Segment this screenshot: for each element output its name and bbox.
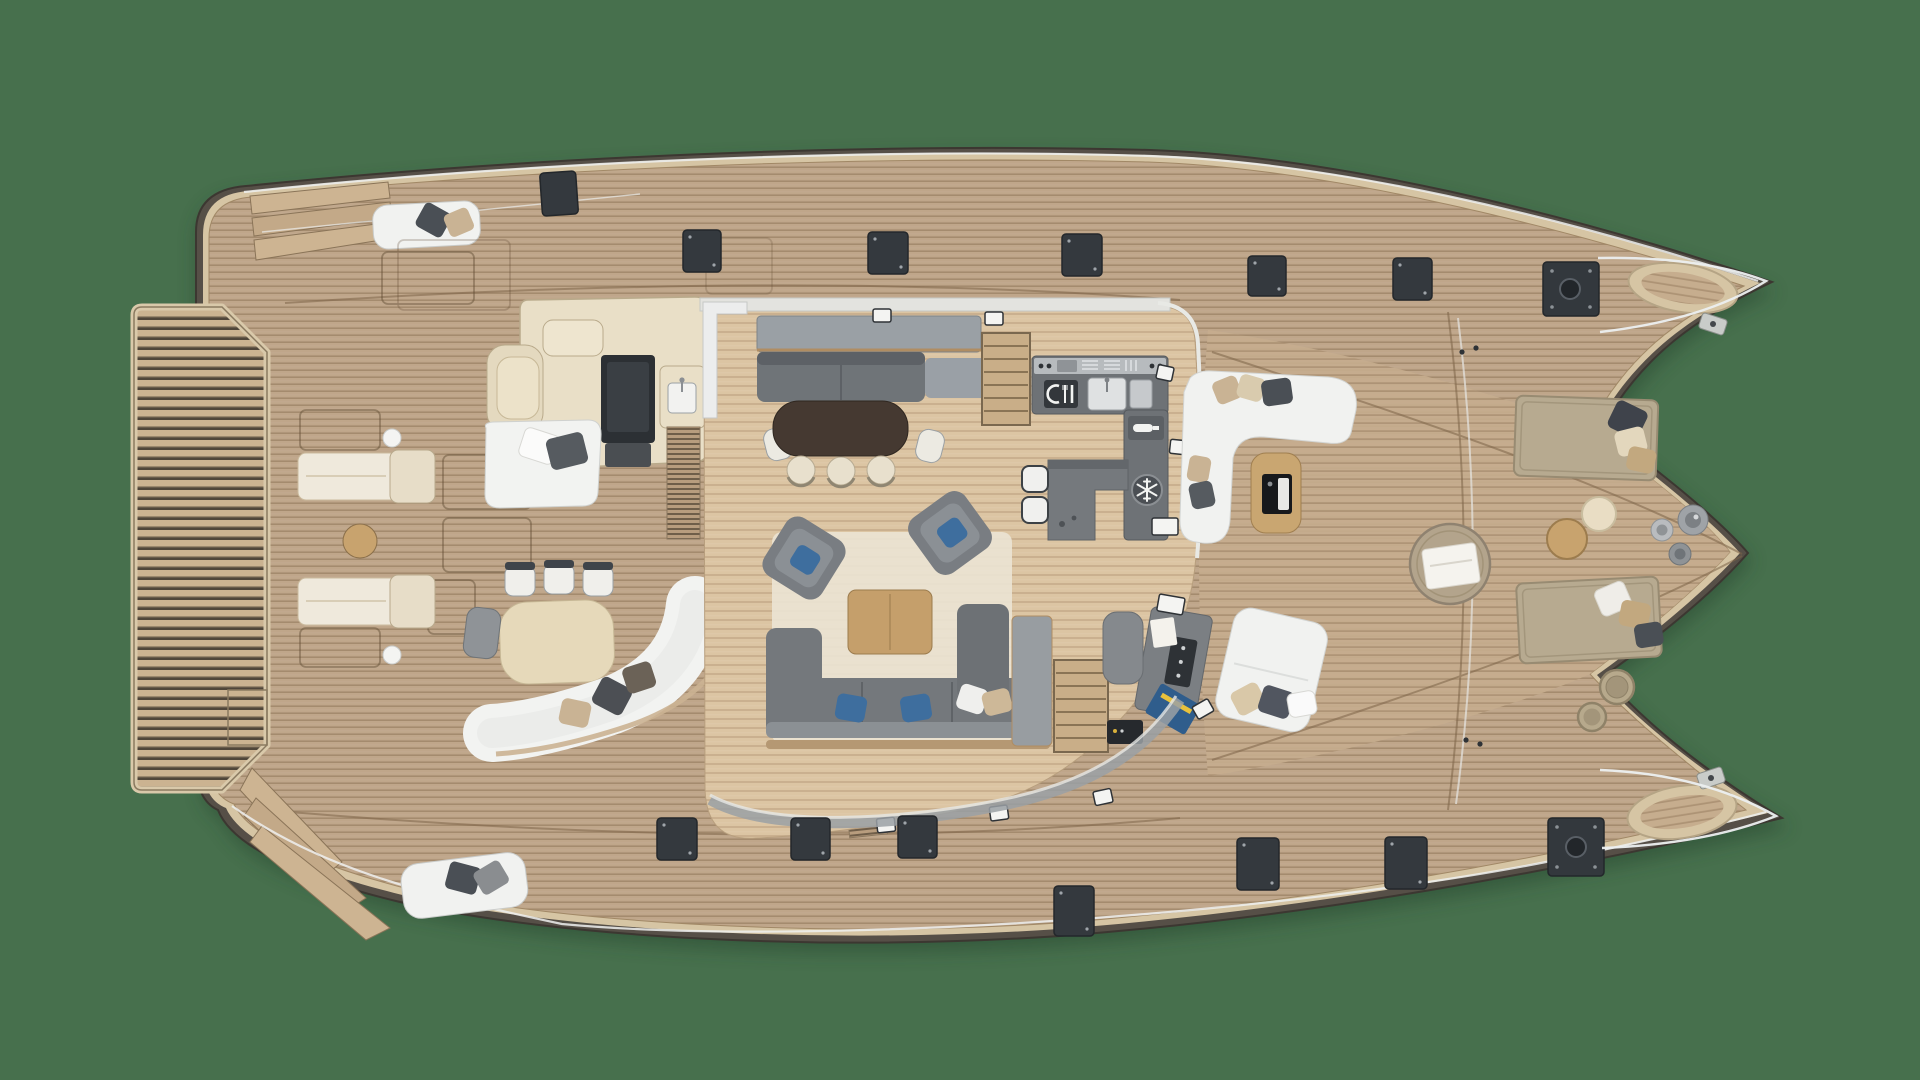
stairs-port [1054, 660, 1108, 752]
helm-corner-seat [485, 420, 601, 508]
sliding-door-post [1157, 594, 1186, 615]
salon-roof-edge [700, 298, 1170, 311]
salon-front-sofa [757, 352, 987, 402]
bar-seat-cushions [487, 345, 543, 431]
foredeck-table-cream [1582, 497, 1616, 531]
snowflake-icon [1132, 475, 1162, 505]
pillow [899, 693, 933, 723]
nav-paper [1150, 617, 1178, 648]
pillow [1286, 690, 1318, 718]
cleat [1473, 345, 1478, 350]
galley-stool [1022, 466, 1048, 492]
cleat [1463, 737, 1468, 742]
pillow [834, 693, 868, 724]
deck-vent-large-top [1543, 262, 1599, 316]
galley-sink [1088, 378, 1126, 410]
sofa-wood-base [766, 740, 1050, 749]
deck-lamp [383, 646, 401, 664]
dining-chair [787, 456, 815, 486]
cutlery-icon [1044, 380, 1078, 408]
bar-tv-base [605, 443, 651, 467]
bar-hatch-lid [543, 320, 603, 356]
coffee-table [848, 590, 932, 654]
aft-lounger-upper [298, 450, 435, 503]
round-side-table [343, 524, 377, 558]
aft-lounger-lower [298, 575, 435, 628]
foredeck-sunpad-bottom [1516, 576, 1665, 663]
salon-dining-table [773, 401, 908, 456]
deck-vent-large-bottom [1548, 818, 1604, 876]
stairs-starboard [982, 333, 1030, 425]
outdoor-dining-table [499, 599, 616, 685]
sofa-side-console [1012, 616, 1052, 746]
yacht-deck-plan [0, 0, 1920, 1080]
deck-hatch [540, 171, 579, 216]
cockpit-pouf [1410, 524, 1490, 604]
sliding-door-post [1152, 518, 1178, 535]
bar-sink-unit [660, 366, 705, 428]
cleat [1477, 741, 1482, 746]
bottle-icon [1128, 416, 1164, 440]
dining-chair [867, 456, 895, 486]
companionway-grate-top [667, 427, 700, 539]
nav-seat [1103, 612, 1143, 684]
end-seat [462, 606, 502, 660]
dining-chair [827, 457, 855, 487]
dining-chair-outdoor [505, 562, 535, 596]
dining-chair-outdoor [583, 562, 613, 596]
deck-plan-canvas [0, 0, 1920, 1080]
galley-cooktop [1034, 358, 1166, 374]
aft-sofa-top [372, 198, 481, 250]
dining-chair-outdoor [544, 560, 574, 594]
cleat [1459, 349, 1464, 354]
salon-sideboard [757, 316, 981, 352]
pillow [1260, 377, 1293, 407]
foredeck-sunpad-top [1514, 395, 1660, 481]
aft-swim-platform [134, 307, 267, 790]
galley-sink-small [1130, 380, 1152, 408]
salon-bench [925, 358, 987, 398]
deck-hatch [1248, 256, 1286, 296]
pillow [1633, 621, 1664, 649]
galley-stool [1022, 497, 1048, 523]
deck-lamp [383, 429, 401, 447]
cockpit-table [1251, 453, 1301, 533]
foredeck-table-wood [1547, 519, 1587, 559]
bar-tv-glass [607, 362, 649, 432]
